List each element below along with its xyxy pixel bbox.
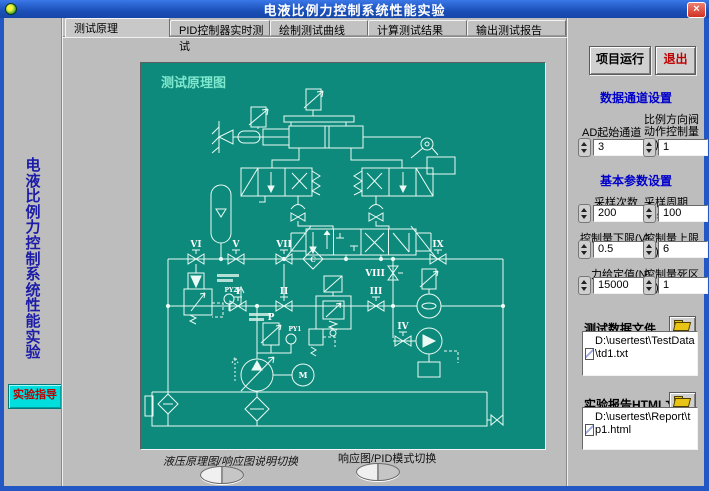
hydraulic-schematic-panel: 测试原理图	[140, 62, 546, 450]
control-lower-limit-value[interactable]: 0.5	[593, 241, 649, 258]
app-icon	[5, 3, 17, 15]
tab-output-test-report[interactable]: 输出测试报告	[467, 20, 566, 36]
motor-label-m: M	[299, 370, 308, 380]
test-data-file-path[interactable]: D:\usertest\TestData\td1.txt	[582, 331, 698, 376]
right-panel-divider	[566, 18, 568, 486]
schematic-lines	[145, 89, 505, 426]
control-lower-limit-control: 0.5	[578, 240, 649, 259]
control-upper-limit-control: 6	[643, 240, 708, 259]
exit-button[interactable]: 退出	[655, 46, 696, 75]
diagram-title: 测试原理图	[161, 75, 226, 90]
valve-label-ix: IX	[432, 240, 443, 250]
valve-label-v: V	[232, 240, 241, 250]
titlebar[interactable]: 电液比例力控制系统性能实验 ×	[0, 0, 709, 18]
control-deadband-control: 1	[643, 276, 708, 295]
test-data-file-path-text: D:\usertest\TestData\td1.txt	[595, 335, 695, 360]
sample-count-value[interactable]: 200	[593, 205, 649, 222]
run-project-button[interactable]: 项目运行	[589, 46, 651, 75]
control-upper-limit-stepper[interactable]	[643, 240, 656, 259]
ad-start-channel-value[interactable]: 3	[593, 139, 649, 156]
path-type-icon	[585, 348, 594, 360]
prop-valve-action-value[interactable]: 1	[658, 139, 708, 156]
sample-count-control: 200	[578, 204, 649, 223]
control-deadband-value[interactable]: 1	[658, 277, 708, 294]
report-html-file-path[interactable]: D:\usertest\Report\tp1.html	[582, 407, 698, 450]
gauge-label-py1: PY1	[289, 326, 302, 333]
tab-pid-realtime-test[interactable]: PID控制器实时测试	[170, 20, 270, 36]
tab-test-principle[interactable]: 测试原理	[65, 18, 170, 37]
sample-count-stepper[interactable]	[578, 204, 591, 223]
cooler-label-c: C	[310, 255, 316, 264]
prop-valve-action-control: 1	[643, 138, 708, 157]
valve-label-vi: VI	[189, 240, 201, 250]
control-deadband-stepper[interactable]	[643, 276, 656, 295]
section-data-channel-settings: 数据通道设置	[570, 89, 702, 106]
force-setpoint-stepper[interactable]	[578, 276, 591, 295]
experiment-guide-button[interactable]: 实验指导	[8, 384, 62, 409]
force-setpoint-control: 15000	[578, 276, 649, 295]
report-html-file-path-text: D:\usertest\Report\tp1.html	[595, 411, 690, 436]
sidebar-divider	[61, 18, 63, 486]
sidebar-vertical-title: 电液比例力控制系统性能实验	[23, 158, 43, 361]
section-basic-parameter-settings: 基本参数设置	[570, 172, 702, 189]
pressure-label-p: P	[268, 313, 275, 323]
path-type-icon	[585, 424, 594, 436]
prop-valve-action-stepper[interactable]	[643, 138, 656, 157]
valve-label-iii: III	[370, 287, 383, 297]
ad-start-channel-control: 3	[578, 138, 649, 157]
sample-period-value[interactable]: 100	[658, 205, 708, 222]
control-lower-limit-stepper[interactable]	[578, 240, 591, 259]
valve-label-vii: VII	[275, 240, 291, 250]
valve-label-viii: VIII	[364, 269, 385, 279]
tab-plot-test-curve[interactable]: 绘制测试曲线	[270, 20, 368, 36]
ad-start-channel-stepper[interactable]	[578, 138, 591, 157]
valve-label-ii: II	[280, 287, 288, 297]
app-window: 电液比例力控制系统性能实验 × 电液比例力控制系统性能实验 实验指导 测试原理 …	[0, 0, 709, 491]
window-title: 电液比例力控制系统性能实验	[0, 0, 709, 19]
tab-compute-test-result[interactable]: 计算测试结果	[368, 20, 467, 36]
schematic-svg: 测试原理图	[141, 63, 545, 449]
close-icon[interactable]: ×	[687, 2, 706, 18]
gauge-label-py2: PY2	[225, 287, 238, 294]
valve-label-iv: IV	[397, 322, 409, 332]
sample-period-control: 100	[643, 204, 708, 223]
response-pid-toggle[interactable]	[356, 463, 400, 481]
force-setpoint-value[interactable]: 15000	[593, 277, 649, 294]
control-upper-limit-value[interactable]: 6	[658, 241, 708, 258]
schematic-response-toggle[interactable]	[200, 466, 244, 484]
sample-period-stepper[interactable]	[643, 204, 656, 223]
